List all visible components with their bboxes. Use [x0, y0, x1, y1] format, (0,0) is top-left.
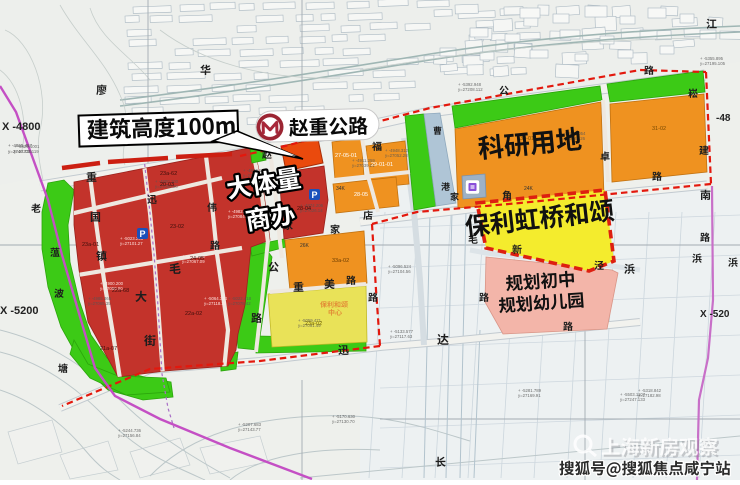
- svg-text:34K: 34K: [336, 186, 346, 192]
- svg-text:X -520: X -520: [700, 309, 730, 320]
- svg-text:24-05: 24-05: [190, 256, 204, 262]
- svg-text:28-05: 28-05: [354, 192, 368, 198]
- svg-text:-48: -48: [716, 113, 731, 124]
- svg-text:23a-01: 23a-01: [82, 242, 99, 248]
- svg-text:22a-02: 22a-02: [185, 311, 202, 317]
- svg-text:X -5200: X -5200: [0, 305, 39, 317]
- svg-text:y=27195.105: y=27195.105: [700, 61, 726, 66]
- svg-text:31-02: 31-02: [652, 126, 666, 132]
- svg-text:y=27117.63: y=27117.63: [390, 334, 413, 339]
- svg-text:y=27208.112: y=27208.112: [458, 87, 483, 92]
- svg-text:24K: 24K: [524, 186, 534, 192]
- svg-text:29-01-01: 29-01-01: [371, 162, 393, 168]
- svg-text:y=27065.35: y=27065.35: [88, 301, 111, 306]
- svg-text:y=27156.84: y=27156.84: [118, 433, 141, 438]
- svg-text:y=27143.77: y=27143.77: [238, 427, 261, 432]
- svg-text:26K: 26K: [300, 243, 310, 249]
- svg-text:P: P: [139, 229, 145, 239]
- svg-text:33a-02: 33a-02: [332, 258, 349, 264]
- svg-text:20-03: 20-03: [160, 182, 174, 188]
- svg-text:y=27052.28: y=27052.28: [385, 153, 408, 158]
- svg-text:30-01: 30-01: [520, 136, 534, 142]
- svg-text:y=27130.70: y=27130.70: [332, 419, 355, 424]
- svg-text:21a-07: 21a-07: [100, 346, 117, 352]
- svg-text:X -4800: X -4800: [2, 121, 41, 133]
- svg-text:y=27118.36: y=27118.36: [204, 301, 227, 306]
- svg-text:P: P: [311, 190, 317, 200]
- svg-text:y=27169.91: y=27169.91: [518, 393, 541, 398]
- svg-text:23a-62: 23a-62: [160, 171, 177, 177]
- svg-text:23a-02: 23a-02: [305, 321, 322, 327]
- svg-text:y=27101.27: y=27101.27: [120, 241, 143, 246]
- svg-text:y=27078.42: y=27078.42: [228, 301, 251, 306]
- svg-text:y=27104.56: y=27104.56: [388, 269, 411, 274]
- svg-text:28-04: 28-04: [297, 206, 311, 212]
- svg-text:y=27247.133: y=27247.133: [620, 397, 646, 402]
- svg-text:23-02: 23-02: [170, 224, 184, 230]
- svg-text:27-05-01: 27-05-01: [335, 153, 357, 159]
- svg-text:y=27221.119: y=27221.119: [14, 149, 39, 154]
- svg-text:22a-68: 22a-68: [112, 288, 129, 294]
